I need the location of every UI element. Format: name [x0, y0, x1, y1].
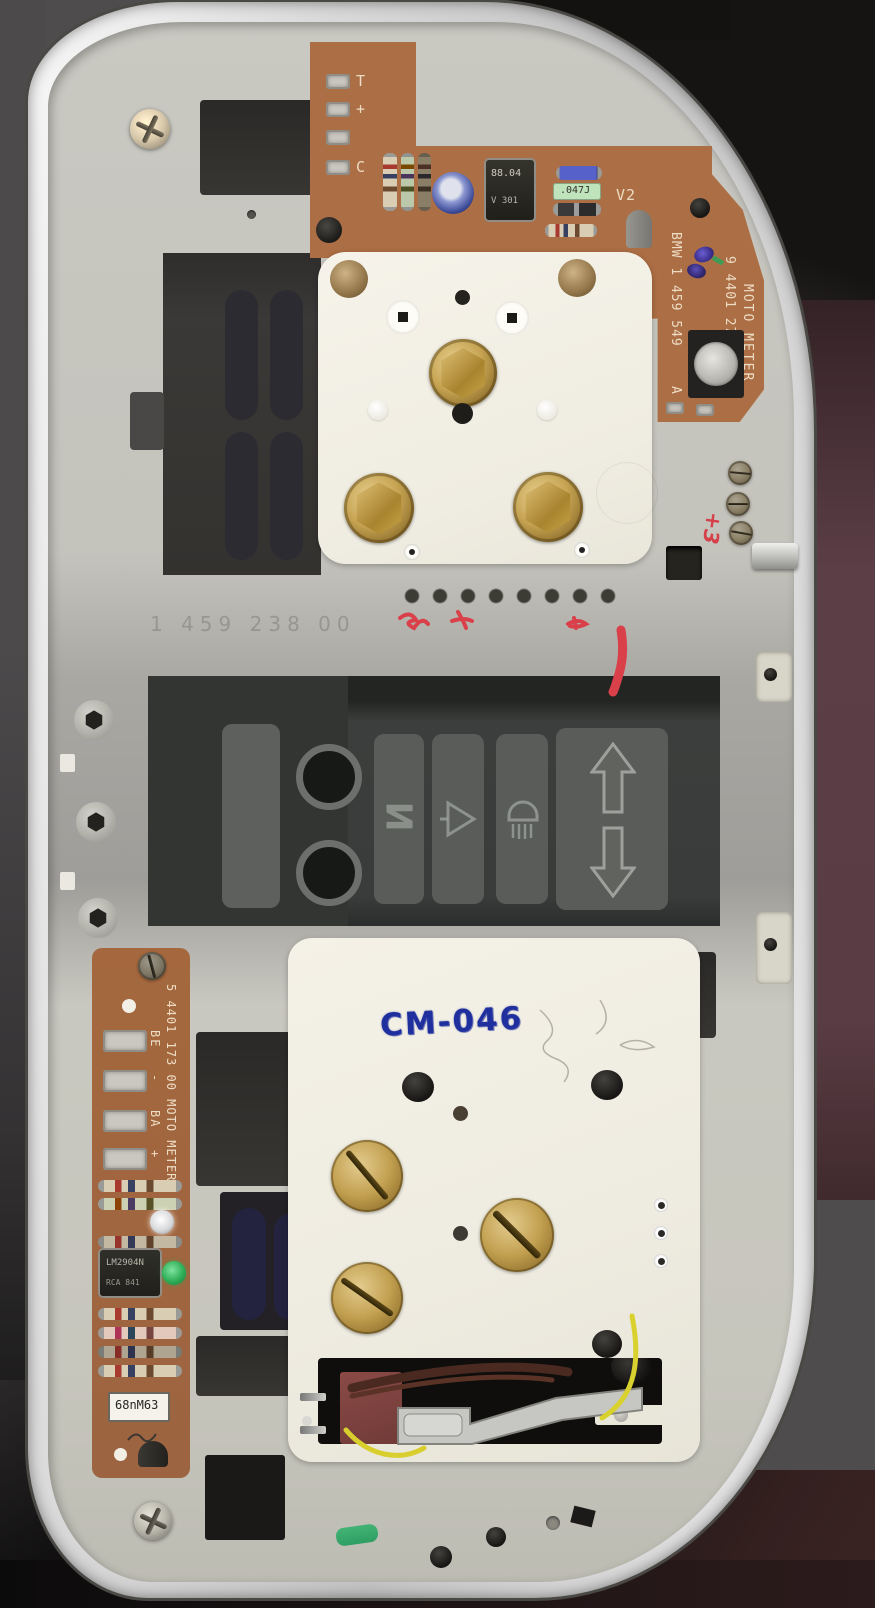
neutral-symbol: N: [378, 801, 419, 831]
hole-center: [579, 547, 585, 553]
slot: [225, 290, 258, 420]
small-hole: [453, 1106, 468, 1121]
resistor: [98, 1180, 182, 1192]
brass-screw-lower-left: [331, 1262, 403, 1334]
lamp-hole: [516, 588, 532, 604]
diode: [553, 203, 601, 216]
rubber-grommet: [592, 1330, 622, 1358]
pointer-dot: [654, 1226, 668, 1240]
brass-screw-center: [480, 1198, 554, 1272]
resistor: [401, 153, 414, 211]
hollow-arrow-down-icon: [590, 826, 636, 898]
capacitor-label-box: 68nM63: [108, 1392, 170, 1422]
dip-ic-top: 88.04 V 301: [486, 160, 534, 220]
brass-screw-upper-left: [331, 1140, 403, 1212]
plate-hole: [404, 544, 420, 560]
square-aperture: [507, 313, 517, 323]
scanned-photo-instrument-cluster-rear: T + C 88.04 V 301 .047J V2 MOTO METER 9 …: [0, 0, 875, 1608]
transistor-bottom: [138, 1441, 168, 1467]
keyed-hole-right: [495, 301, 529, 335]
dot-center: [658, 1230, 665, 1237]
window-top-left: [200, 100, 320, 195]
pad-pair-be: [103, 1030, 147, 1052]
connector-pin: [300, 1393, 326, 1401]
dot-center: [658, 1258, 665, 1265]
bulb-socket-upper: [296, 744, 362, 810]
rubber-knob: [611, 1358, 651, 1384]
bottom-hole: [486, 1527, 506, 1547]
lamp-hole: [460, 588, 476, 604]
electrolytic-capacitor-black: [316, 217, 342, 243]
solder-pad-c: [326, 160, 350, 175]
led-green: [162, 1261, 186, 1285]
solder-pad-plus: [326, 102, 350, 117]
pad-label-c: C: [356, 158, 367, 176]
square-aperture: [398, 312, 408, 322]
film-capacitor-label: .047J: [560, 185, 590, 196]
lamp-hole: [488, 588, 504, 604]
resistor: [418, 153, 431, 211]
window-bottom-left: [196, 1336, 294, 1396]
small-hole: [453, 1226, 468, 1241]
rim-clip-upper-screw: [764, 668, 777, 681]
resistor: [98, 1327, 182, 1339]
capacitor-label: 68nM63: [115, 1398, 158, 1412]
indicator-band: N: [148, 676, 720, 926]
pad-label-ba: BA: [148, 1110, 162, 1128]
resistor: [98, 1308, 182, 1320]
pad-label-be: BE: [148, 1030, 162, 1048]
slot: [270, 432, 303, 560]
solder-pad: [326, 130, 350, 145]
brass-hex-screw-right: [513, 472, 583, 542]
pilot-hole: [247, 210, 256, 219]
latch-hole: [666, 546, 702, 580]
solder-pad-t: [326, 74, 350, 89]
window-arrows: [556, 728, 668, 910]
keyed-hole-left: [386, 300, 420, 334]
upper-gauge-plate: [318, 252, 652, 564]
resistor: [98, 1198, 182, 1210]
pcb-bottom-silk-number: 5 4401 173 00 MOTO METER: [164, 984, 178, 1204]
solder-pad: [666, 402, 684, 414]
slot: [225, 432, 258, 560]
ic-marking-line2: V 301: [491, 196, 518, 206]
pad-pair-ba: [103, 1110, 147, 1132]
resistor-blue: [556, 166, 602, 180]
pad-pair-plus: [103, 1148, 147, 1170]
lamp-hole: [432, 588, 448, 604]
pad-label-plus2: +: [148, 1150, 162, 1159]
brass-dome-post: [558, 259, 596, 297]
trimmer-window: [688, 330, 744, 398]
solder-pad: [696, 404, 714, 416]
resistor: [545, 224, 597, 237]
resistor: [98, 1346, 182, 1358]
pad-label-minus: -: [148, 1074, 162, 1083]
housing-tab: [60, 754, 75, 772]
pad-label-plus: +: [356, 100, 367, 118]
lamp-hole: [404, 588, 420, 604]
window-gauge-upper-left: [163, 253, 321, 575]
embossed-part-number: 1 459 238 00: [150, 612, 356, 636]
connector-pin: [302, 1416, 312, 1426]
led-white: [150, 1210, 174, 1234]
resistor: [98, 1236, 182, 1248]
window-high-beam: [496, 734, 548, 904]
cable-boss-2: [76, 802, 116, 842]
ic-bottom-line2: RCA 841: [106, 1278, 140, 1287]
slot: [270, 290, 303, 420]
hollow-arrow-up-icon: [590, 742, 636, 814]
window-turn-signal: [432, 734, 484, 904]
cable-boss-1: [74, 700, 114, 740]
bottom-hole-small: [546, 1516, 560, 1530]
brass-hex-screw-left: [344, 473, 414, 543]
window-neutral: N: [374, 734, 424, 904]
brass-hex-screw-center: [429, 339, 497, 407]
dip-ic-bottom: LM2904N RCA 841: [100, 1250, 160, 1296]
lamp-hole: [544, 588, 560, 604]
white-bracket: [595, 1405, 662, 1425]
pointer-dot: [654, 1254, 668, 1268]
spindle-hole: [452, 403, 473, 424]
transistor-ref-label: V2: [616, 186, 636, 204]
plate-bump: [368, 400, 388, 420]
window-blank: [222, 724, 280, 908]
housing-tab: [60, 872, 75, 890]
hole-center: [409, 549, 415, 555]
cable-boss-3: [78, 898, 118, 938]
adjuster-screw-3: [729, 521, 753, 545]
ink-stamp: CM-046: [379, 1000, 524, 1043]
rim-clip-lower-screw: [764, 938, 777, 951]
embossed-circle-ghost: [596, 462, 658, 524]
silk-bmw-number: BMW 1 459 549: [668, 232, 683, 392]
pad-label-t: T: [356, 72, 367, 90]
lamp-hole: [600, 588, 616, 604]
pad-pair-minus: [103, 1070, 147, 1092]
bottom-hole: [430, 1546, 452, 1568]
locating-dot: [122, 999, 136, 1013]
adjuster-screw-2: [726, 492, 750, 516]
connector-block-maroon: [340, 1372, 402, 1444]
high-beam-icon: [505, 796, 541, 842]
resistor: [98, 1365, 182, 1377]
transistor-v2: [626, 210, 652, 248]
film-capacitor-green: .047J: [553, 183, 601, 200]
plate-hole: [574, 542, 590, 558]
brass-dome-post: [330, 260, 368, 298]
bracket-bolt: [614, 1408, 628, 1422]
silk-revision: A: [668, 386, 683, 396]
pcb-screw-top: [138, 952, 166, 980]
window-bottom-left-2: [205, 1455, 285, 1540]
resistor: [383, 153, 397, 211]
plate-bump: [537, 400, 557, 420]
pointer-dot: [654, 1198, 668, 1212]
pcb-screw-hole: [690, 198, 710, 218]
red-handwriting-plus3: +3: [698, 510, 726, 545]
dot-center: [658, 1202, 665, 1209]
lower-gauge-plate: CM-046: [288, 938, 700, 1462]
case-screw-top-left: [130, 109, 170, 149]
sensor-opening: [318, 1358, 662, 1444]
rubber-grommet: [591, 1070, 623, 1100]
metal-latch-clip: [752, 543, 798, 569]
bulb-socket-lower: [296, 840, 362, 906]
lamp-hole: [572, 588, 588, 604]
locating-dot: [114, 1448, 127, 1461]
rubber-grommet: [402, 1072, 434, 1102]
turn-signal-icon: [440, 798, 478, 840]
connector-pin: [300, 1426, 326, 1434]
electrolytic-capacitor-blue: [432, 172, 474, 214]
case-screw-bottom-left: [134, 1502, 172, 1540]
trimmer-disc: [694, 342, 738, 386]
center-hole: [455, 290, 470, 305]
ic-bottom-line1: LM2904N: [106, 1258, 144, 1268]
housing-notch: [130, 392, 164, 450]
ic-marking-line1: 88.04: [491, 168, 521, 179]
blue-slot: [232, 1208, 266, 1320]
adjuster-screw-1: [728, 461, 752, 485]
